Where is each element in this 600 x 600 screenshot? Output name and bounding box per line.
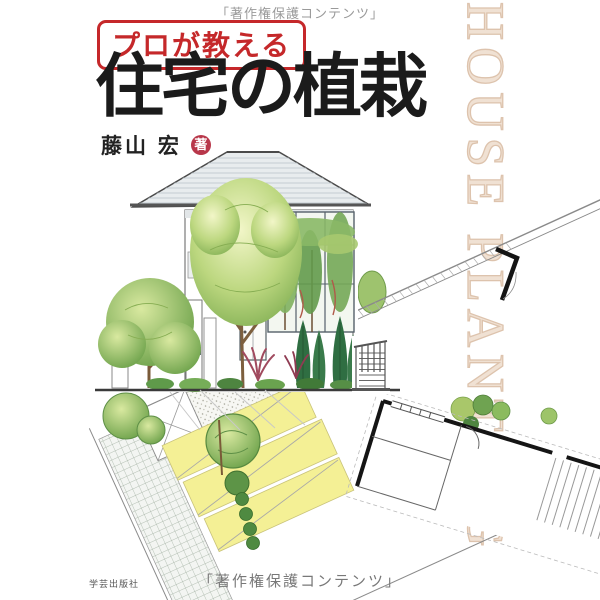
- author-seal: 著: [191, 135, 211, 155]
- plan-small-tree: [358, 271, 386, 313]
- book-cover: HOUSE PLANTING: [0, 0, 600, 600]
- copyright-notice-top: 「著作権保護コンテンツ」: [0, 3, 600, 22]
- author-row: 藤山 宏 著: [101, 130, 211, 160]
- book-title: 住宅の植栽: [95, 50, 425, 125]
- copyright-notice-bottom: 「著作権保護コンテンツ」: [0, 570, 600, 591]
- exterior-stairs: [352, 336, 390, 394]
- plan-wall-corner: [496, 249, 517, 300]
- author-name: 藤山 宏: [101, 130, 182, 160]
